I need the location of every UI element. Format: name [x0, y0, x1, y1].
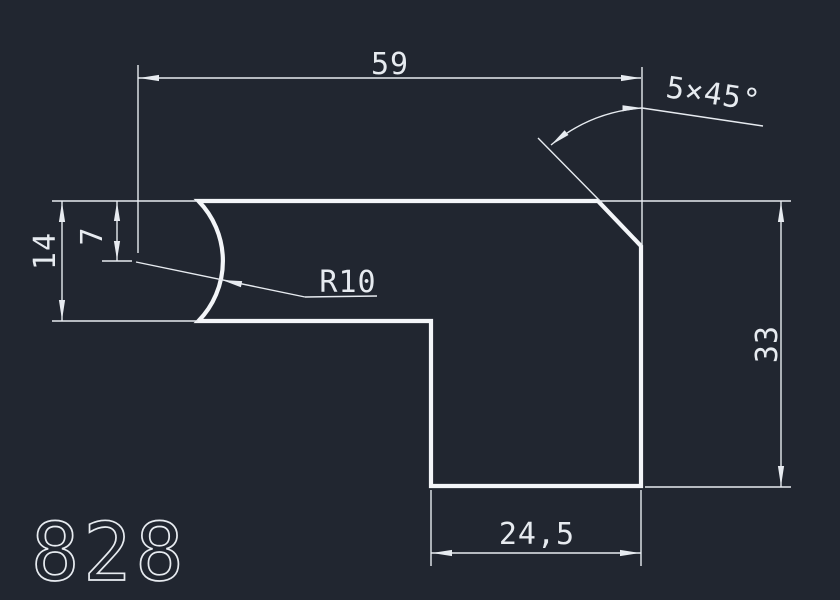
arrowhead-14-top: [59, 202, 65, 222]
arrowhead-7-bottom: [114, 241, 120, 260]
dimension-24-5: 24,5: [431, 490, 641, 566]
dimension-7: 7: [75, 201, 132, 261]
arrowhead-33-top: [778, 202, 784, 222]
technical-drawing: 59 5×45° 7 14 R10 33: [0, 0, 840, 600]
chamfer-label: 5×45°: [664, 70, 763, 119]
chamfer-extension-line: [538, 138, 602, 203]
arrowhead-33-bottom: [778, 466, 784, 486]
dim-59-label: 59: [371, 47, 409, 82]
arrowhead-245-left: [432, 550, 452, 556]
part-outline: [199, 201, 642, 486]
arrowhead-7-top: [114, 202, 120, 221]
arrowhead-chamfer-right: [623, 105, 643, 111]
radius-label: R10: [319, 265, 376, 300]
dimension-33: 33: [600, 201, 791, 487]
radius-callout: R10: [136, 262, 377, 300]
arrowhead-59-left: [139, 75, 159, 81]
dim-33-label: 33: [750, 325, 785, 363]
chamfer-callout: 5×45°: [538, 70, 763, 203]
radius-leader-line: [136, 262, 305, 297]
dim-7-label: 7: [75, 226, 110, 245]
arrowhead-14-bottom: [59, 300, 65, 320]
arrowhead-59-right: [621, 75, 641, 81]
arrowhead-245-right: [620, 550, 640, 556]
chamfer-leader-arc: [551, 108, 642, 145]
cad-drawing-canvas: 59 5×45° 7 14 R10 33: [0, 0, 840, 600]
dim-14-label: 14: [28, 232, 63, 270]
part-profile-path: [199, 201, 642, 486]
dim-245-label: 24,5: [499, 517, 575, 552]
arrowhead-radius: [222, 280, 242, 287]
drawing-number: 828: [31, 506, 188, 599]
arrowhead-chamfer-left: [551, 130, 569, 145]
